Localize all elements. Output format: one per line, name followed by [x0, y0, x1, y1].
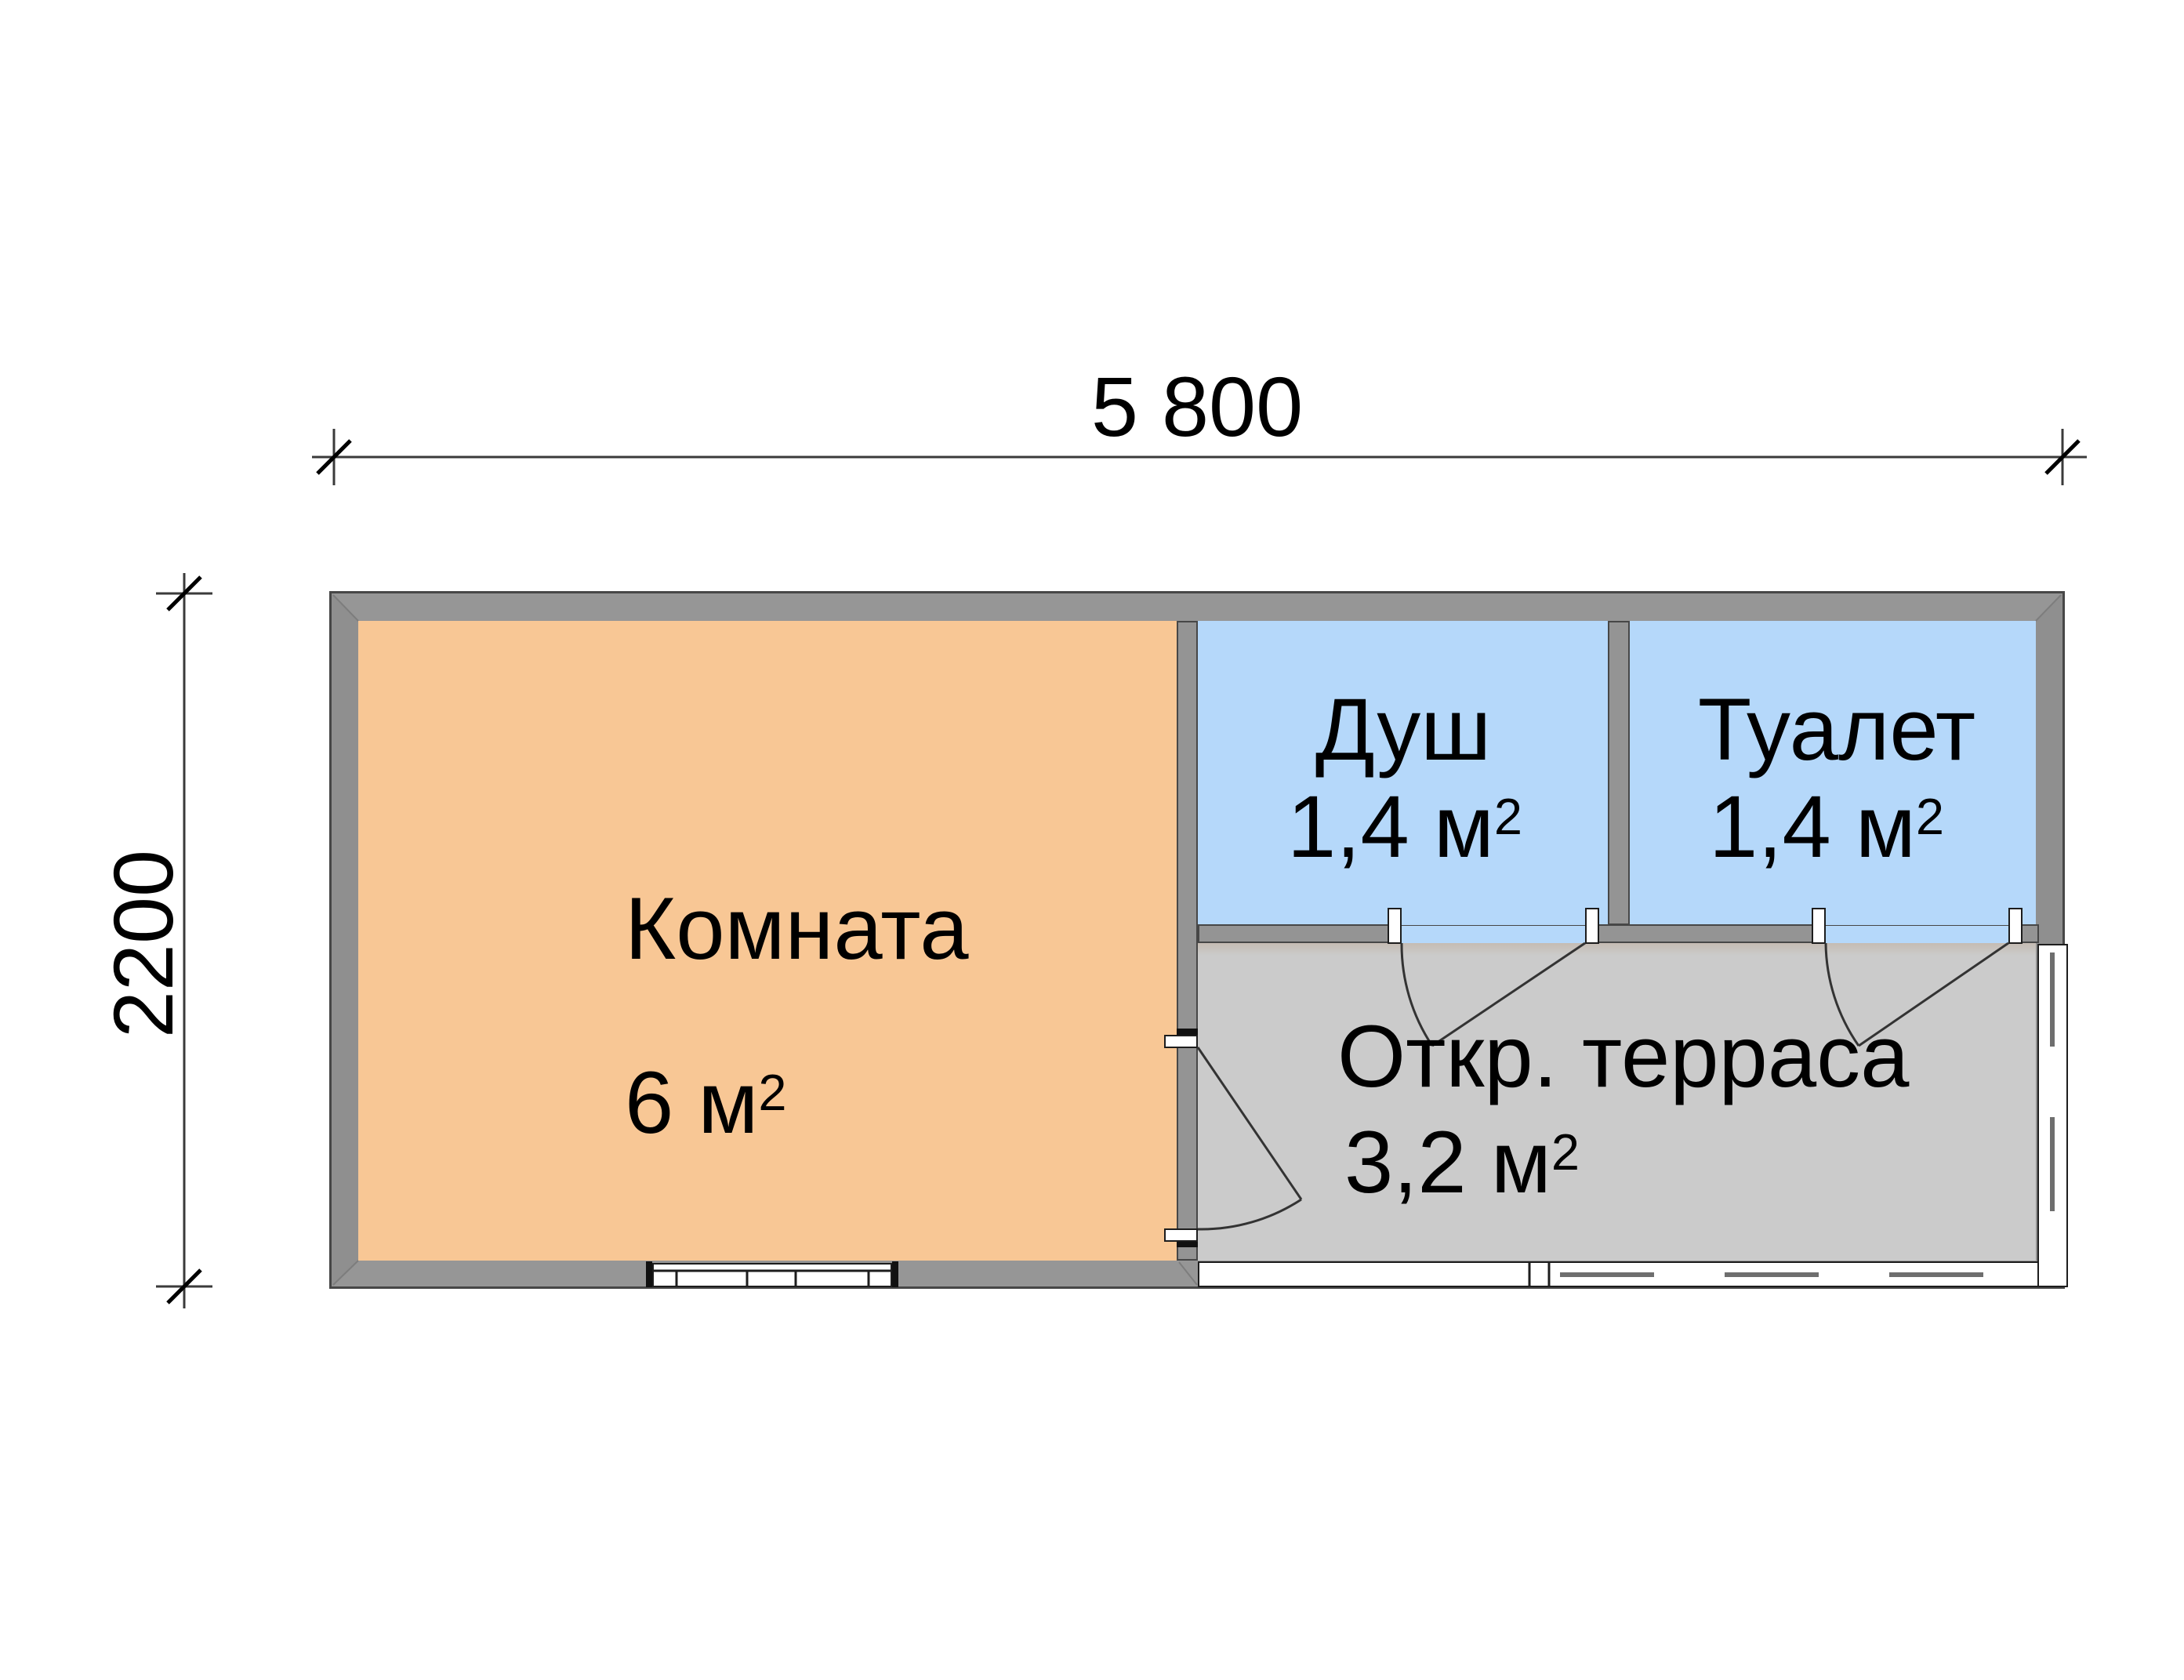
- room-area-sup: 2: [758, 1064, 786, 1121]
- shower-name-label: Душ: [1315, 684, 1491, 777]
- toilet-door-jamb-right: [2008, 908, 2023, 944]
- dimension-top-label: 5 800: [1091, 362, 1303, 452]
- dimension-left-tick-top: [168, 577, 201, 610]
- room-window: [652, 1263, 892, 1287]
- room-door-wall-cap-top: [1177, 1029, 1198, 1035]
- floor-plan-canvas: 5 800 2200 Комната 6 м2 Душ 1,4 м2 Туале…: [0, 0, 2184, 1680]
- dimension-top-tick-left: [317, 441, 350, 474]
- terrace-name-label: Откр. терраса: [1337, 1011, 1909, 1104]
- terrace-bottom-open-edge: [1198, 1261, 2068, 1287]
- toilet-area-label: 1,4 м2: [1709, 781, 1944, 874]
- terrace-area-value: 3,2 м: [1344, 1113, 1551, 1211]
- toilet-name-label: Туалет: [1698, 684, 1975, 777]
- shower-area-label: 1,4 м2: [1287, 781, 1522, 874]
- window-wall-cap-right: [892, 1261, 898, 1287]
- shower-area-value: 1,4 м: [1287, 778, 1494, 876]
- terrace-area-sup: 2: [1551, 1123, 1580, 1181]
- dimension-left-label: 2200: [99, 850, 188, 1038]
- room-area-label: 6 м2: [625, 1057, 787, 1150]
- room-name-label: Комната: [625, 883, 969, 976]
- shower-area-sup: 2: [1494, 788, 1522, 845]
- terrace-right-open-edge: [2037, 944, 2068, 1287]
- toilet-door-jamb-left: [1812, 908, 1826, 944]
- toilet-area-value: 1,4 м: [1709, 778, 1916, 876]
- wall-shower-terrace: [1198, 924, 1402, 943]
- wall-toilet-terrace: [1585, 924, 1826, 943]
- shower-door-jamb-right: [1585, 908, 1599, 944]
- wall-room-terrace: [1177, 621, 1198, 1261]
- shower-door-jamb-left: [1388, 908, 1402, 944]
- dimension-left-tick-bottom: [168, 1270, 201, 1303]
- room-door-wall-cap-bottom: [1177, 1242, 1198, 1247]
- room-area-value: 6 м: [625, 1054, 758, 1152]
- toilet-area-sup: 2: [1916, 788, 1944, 845]
- wall-shower-toilet: [1608, 621, 1630, 925]
- room-door-jamb-top: [1164, 1035, 1198, 1048]
- dimension-top-tick-right: [2046, 441, 2079, 474]
- room-door-jamb-bottom: [1164, 1228, 1198, 1242]
- window-wall-cap-left: [646, 1261, 652, 1287]
- terrace-area-label: 3,2 м2: [1344, 1116, 1580, 1210]
